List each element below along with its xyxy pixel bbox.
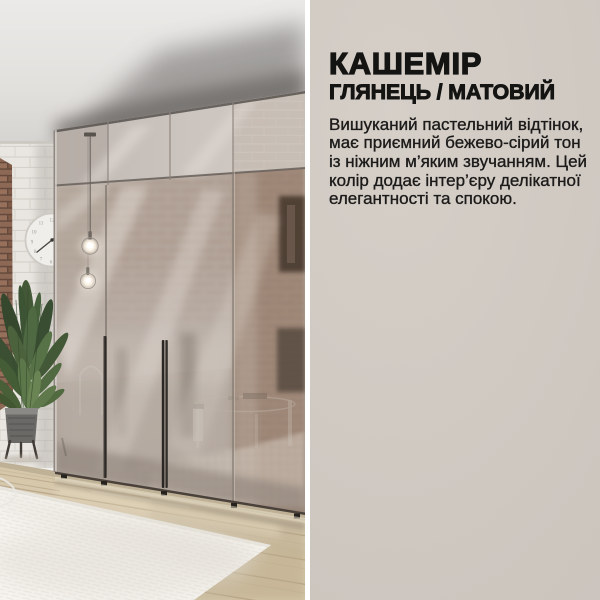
svg-text:10: 10 [32, 231, 38, 236]
svg-text:11: 11 [39, 222, 44, 227]
